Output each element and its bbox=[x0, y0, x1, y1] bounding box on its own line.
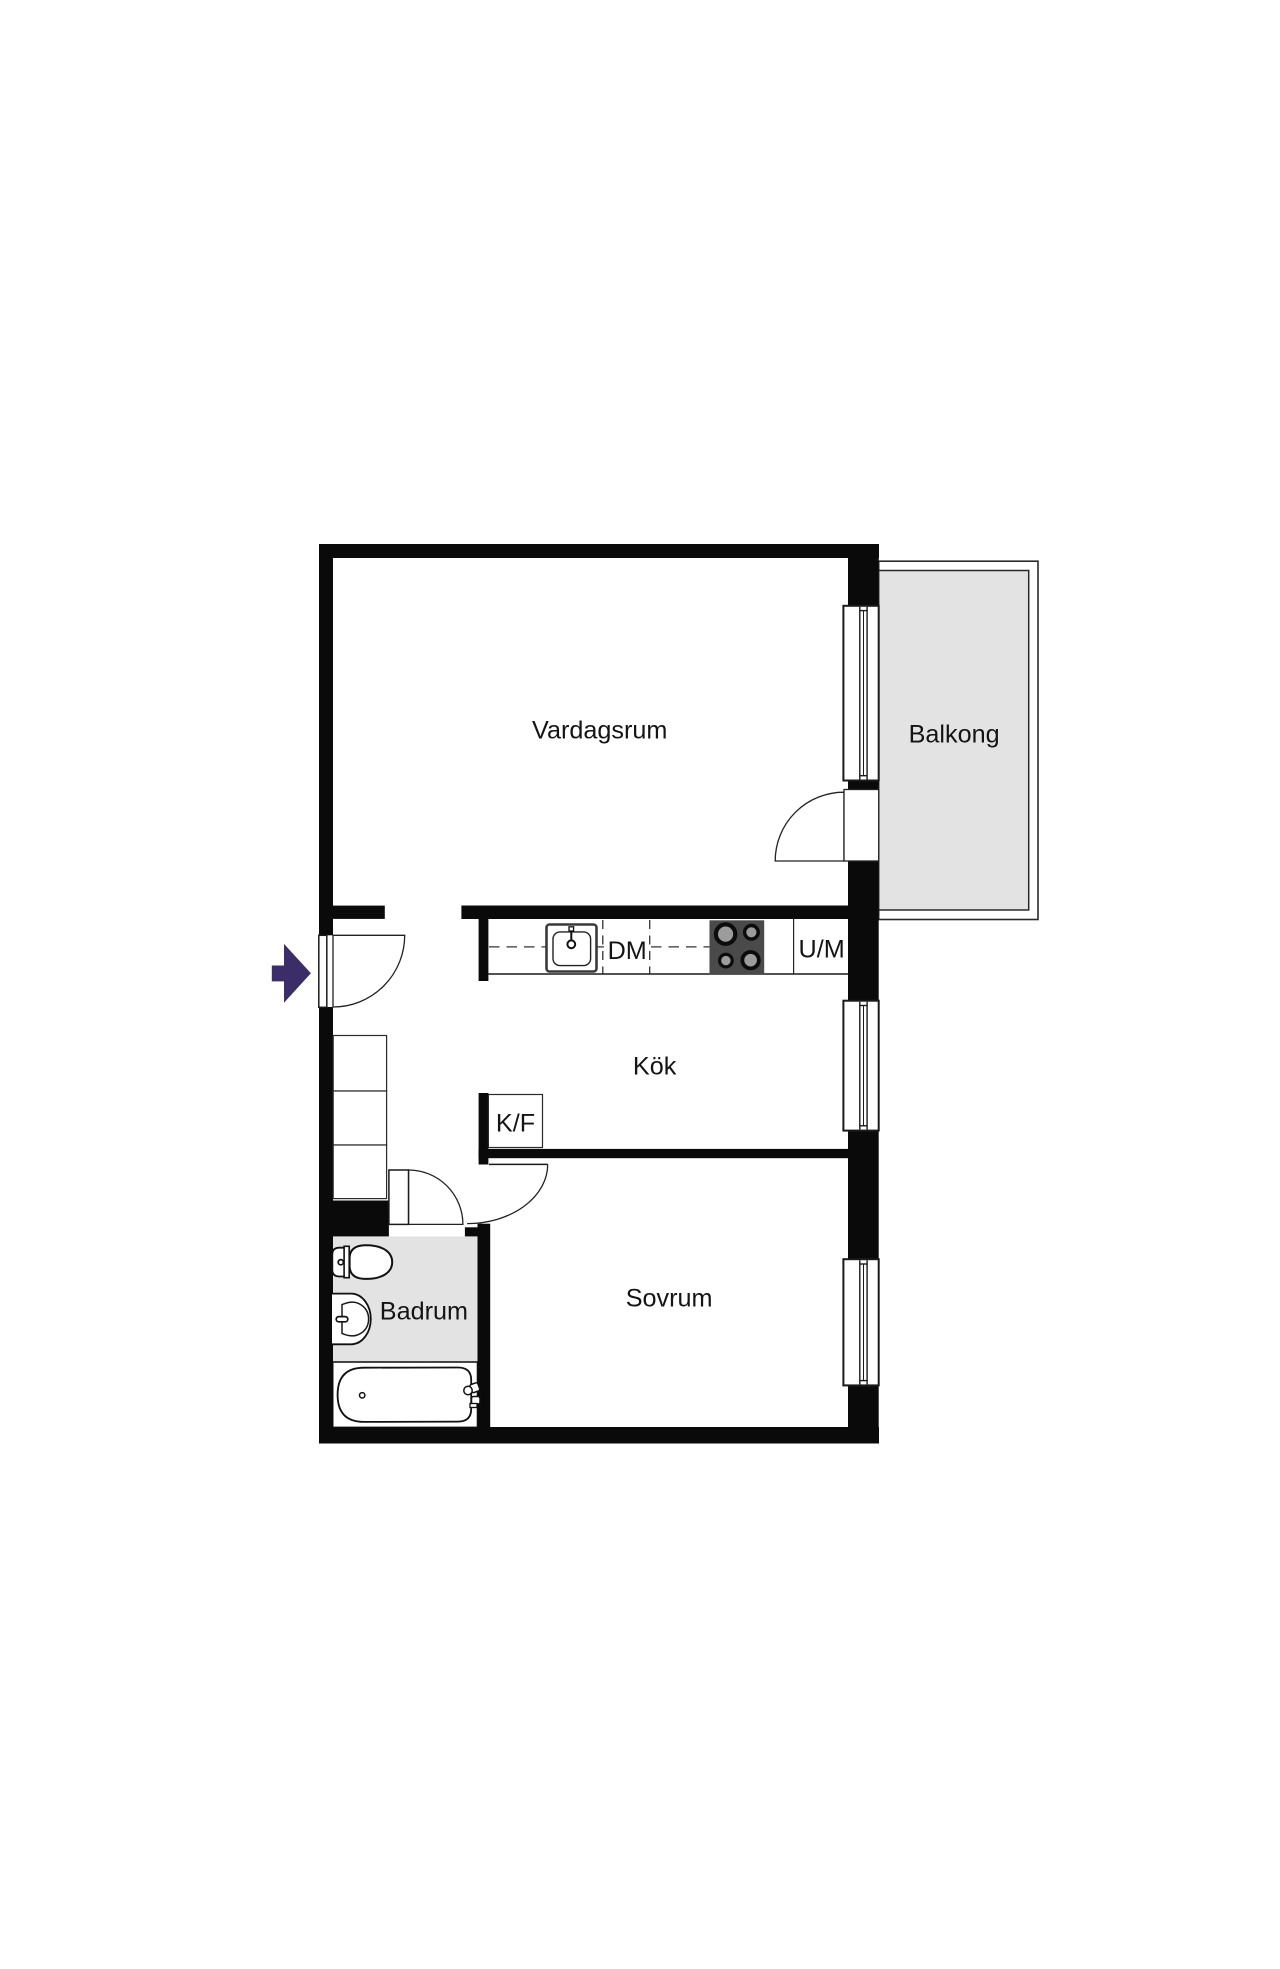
svg-text:Kök: Kök bbox=[633, 1053, 677, 1081]
svg-text:Badrum: Badrum bbox=[380, 1297, 468, 1325]
svg-text:K/F: K/F bbox=[496, 1110, 535, 1138]
svg-text:Sovrum: Sovrum bbox=[626, 1285, 713, 1313]
svg-text:U/M: U/M bbox=[799, 936, 845, 964]
svg-text:Vardagsrum: Vardagsrum bbox=[532, 717, 667, 745]
svg-text:Balkong: Balkong bbox=[909, 721, 1000, 749]
svg-text:DM: DM bbox=[608, 937, 647, 965]
